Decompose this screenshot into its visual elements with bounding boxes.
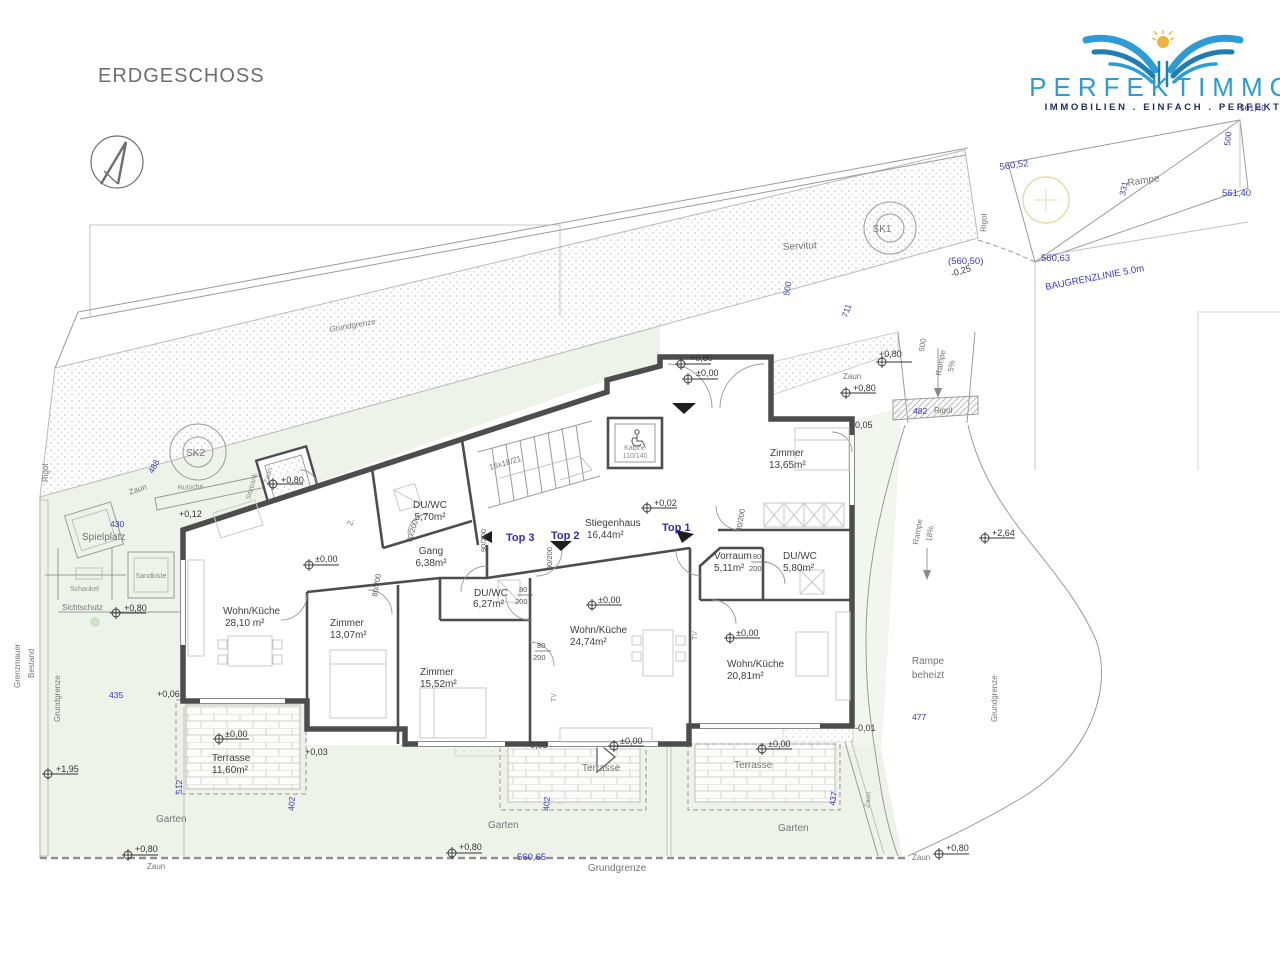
level-m005: -0,05 [852, 420, 873, 430]
room-wk2474-area: 24,74m² [570, 637, 607, 648]
dim-435: 435 [109, 690, 123, 700]
label-sandkiste: Sandkiste [136, 573, 167, 580]
dim-477: 477 [912, 712, 926, 722]
room-gang-name: Gang [419, 546, 443, 557]
label-sk2: SK2 [186, 448, 205, 459]
room-terrasse-area: 11,60m² [212, 765, 249, 776]
level-t2-000: ±0,00 [620, 736, 642, 746]
label-rampe-5: Rampe [934, 349, 947, 377]
label-zaun-se: Zaun [912, 853, 930, 862]
level-p195: +1,95 [56, 764, 79, 774]
room-stiegenhaus-area: 16,44m² [587, 530, 624, 541]
dim-711: 711 [839, 302, 853, 318]
label-top3: Top 3 [506, 532, 535, 544]
label-zaun-sw: Zaun [147, 862, 165, 871]
room-wk2081-name: Wohn/Küche [727, 659, 785, 670]
door-90200-c: 90/200 [545, 547, 554, 570]
level-p012: +0,12 [179, 509, 202, 519]
level-p003: +0,03 [305, 747, 328, 757]
label-grenzmauer: Grenzmauer [13, 643, 22, 688]
level-p006: +0,06 [157, 689, 180, 699]
label-zaun-entry: Zaun [843, 372, 861, 381]
dim-331: 331 [1117, 180, 1130, 196]
room-duwc580-area: 5,80m² [783, 563, 815, 574]
dim-561-40-top: 561,40 [1240, 103, 1266, 113]
label-rampe-beheizt-1: Rampe [912, 656, 945, 667]
svg-text:200: 200 [515, 597, 528, 606]
level-wk28-000: ±0,00 [315, 554, 337, 564]
level-ne-p080: +0,80 [879, 349, 902, 359]
room-duwc627-area: 6,27m² [473, 599, 505, 610]
label-baugrenzlinie: BAUGRENZLINIE 5.0m [1044, 263, 1145, 293]
dim-560-65: 560,65 [517, 852, 546, 863]
room-wk2810-name: Wohn/Küche [223, 606, 281, 617]
label-rigol-ramp: Rigol [934, 406, 952, 415]
svg-text:200: 200 [533, 653, 546, 662]
room-vorraum-area: 5,11m² [714, 563, 745, 574]
label-rampe-18: Rampe [911, 518, 924, 546]
level-sw-p080: +0,80 [135, 844, 158, 854]
level-wk24-000: ±0,00 [598, 595, 620, 605]
label-grundgrenze-bottom: Grundgrenze [588, 863, 647, 874]
label-tv-2: TV [692, 631, 699, 640]
dim-402-left: 402 [286, 796, 297, 811]
room-duwc570-area: 5,70m² [414, 512, 446, 523]
level-sicht-p080: +0,80 [124, 603, 147, 613]
logo: PERFEKTIMMO IMMOBILIEN . EINFACH . PERFE… [1029, 30, 1280, 113]
label-terrasse-2: Terrasse [582, 763, 621, 774]
label-rampe-18pct: 18% [924, 525, 936, 542]
svg-text:80: 80 [537, 641, 545, 650]
label-top1: Top 1 [662, 522, 691, 534]
logo-sun-icon [1152, 30, 1174, 48]
label-top2: Top 2 [551, 530, 580, 542]
level-m003: -0,03 [527, 740, 548, 750]
svg-text:80: 80 [753, 552, 761, 561]
upper-ramp [978, 120, 1280, 470]
label-garten-2: Garten [488, 820, 519, 831]
page-title: ERDGESCHOSS [98, 65, 265, 87]
dim-500-servitut: 500 [781, 280, 793, 296]
room-stiegenhaus-name: Stiegenhaus [585, 518, 641, 529]
label-bestand: Bestand [27, 649, 36, 678]
room-zimmer1365-name: Zimmer [770, 448, 805, 459]
label-tv-1: TV [551, 693, 558, 702]
room-gang-area: 6,38m² [415, 558, 447, 569]
room-zimmer1552-name: Zimmer [420, 667, 455, 678]
room-duwc570-name: DU/WC [413, 500, 447, 511]
dim-512: 512 [174, 780, 184, 794]
room-duwc580-name: DU/WC [783, 551, 817, 562]
label-sichtschutz: Sichtschutz [62, 603, 103, 612]
level-m001: -0,01 [855, 723, 876, 733]
dim-500-topright: 500 [1222, 131, 1233, 146]
dim-430: 430 [110, 519, 124, 529]
floorplan-sheet: PERFEKTIMMO IMMOBILIEN . EINFACH . PERFE… [0, 0, 1280, 960]
dim-560-63: 560,63 [1041, 253, 1070, 264]
label-rigol-ne: Rigol [979, 213, 989, 232]
level-p264: +2,64 [992, 528, 1015, 538]
room-zimmer1307-area: 13,07m² [330, 630, 367, 641]
room-wk2810-area: 28,10 m² [225, 618, 265, 629]
logo-brand: PERFEKTIMMO [1029, 72, 1280, 102]
level-wk20-000: ±0,00 [736, 628, 758, 638]
room-vorraum-name: Vorraum [714, 551, 752, 562]
label-terrasse-3: Terrasse [734, 760, 773, 771]
room-terrasse-name: Terrasse [212, 753, 251, 764]
label-garten-3: Garten [778, 823, 809, 834]
level-entry-000: ±0,00 [696, 368, 718, 378]
label-kabine: Kabine [624, 445, 646, 452]
label-rigol-w: Rigol [41, 464, 50, 482]
label-rampe-beheizt-2: beheizt [912, 670, 944, 681]
room-zimmer1307-name: Zimmer [330, 618, 365, 629]
label-grundgrenze-right: Grundgrenze [990, 675, 999, 722]
label-sk1: SK1 [873, 224, 892, 235]
svg-text:80: 80 [519, 585, 527, 594]
dim-482: 482 [913, 406, 927, 416]
dim-560-52: 560,52 [999, 158, 1029, 173]
level-t3-000: ±0,00 [768, 739, 790, 749]
label-schaukel: Schaukel [70, 586, 99, 593]
level-t1-000: ±0,00 [225, 729, 247, 739]
label-kabine-size: 110/140 [623, 453, 648, 460]
level-zaun-p080: +0,80 [853, 383, 876, 393]
room-zimmer1365-area: 13,65m² [769, 460, 806, 471]
level-entry-p080: +0,80 [690, 353, 713, 363]
dim-561-40-right: 561,40 [1222, 188, 1251, 199]
room-zimmer1552-area: 15,52m² [420, 679, 457, 690]
level-box-p080: +0,80 [281, 475, 304, 485]
room-wk2474-name: Wohn/Küche [570, 625, 628, 636]
dim-500-ramp: 500 [917, 337, 928, 352]
label-grundgrenze-left: Grundgrenze [53, 675, 62, 722]
label-servitut: Servitut [783, 240, 818, 253]
level-stair-p002: +0,02 [654, 498, 677, 508]
label-garten-1: Garten [156, 814, 187, 825]
door-90200-b: 90/200 [479, 529, 488, 552]
north-arrow-icon [91, 136, 143, 188]
label-rampe-5pct: 5% [946, 359, 957, 372]
svg-text:200: 200 [749, 564, 762, 573]
dim-437: 437 [827, 791, 839, 807]
room-duwc627-name: DU/WC [474, 588, 508, 599]
side-ramp [866, 332, 1102, 856]
dim-402-mid: 402 [541, 796, 552, 811]
room-wk2081-area: 20,81m² [727, 671, 764, 682]
level-se-p080: +0,80 [946, 843, 969, 853]
label-spielplatz: Spielplatz [82, 532, 125, 543]
level-s-p080: +0,80 [459, 842, 482, 852]
